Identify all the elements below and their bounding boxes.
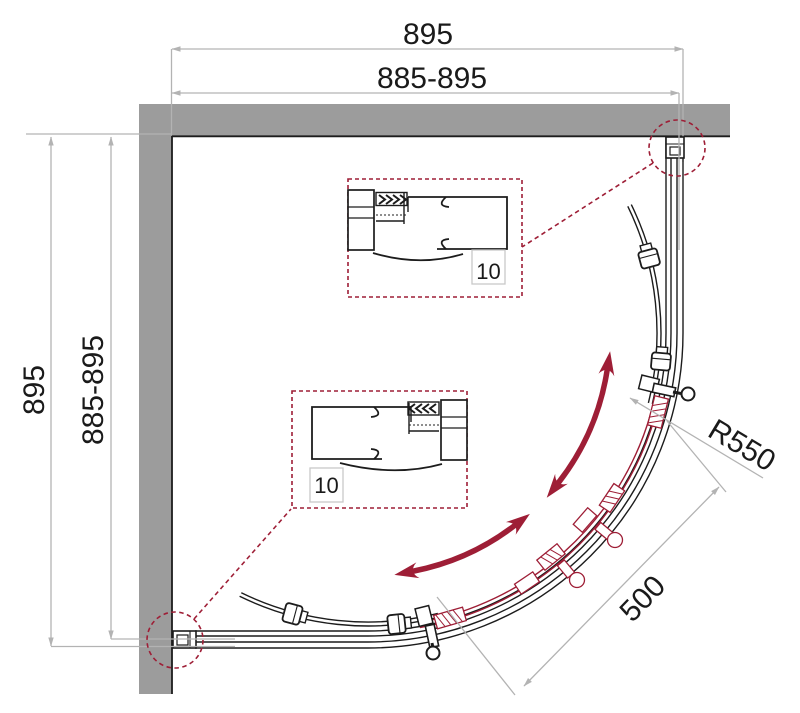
door-overlap-profile [515, 572, 540, 594]
door-end-profile [648, 396, 669, 428]
top-wall [139, 104, 730, 136]
dim-top-overall-label: 895 [403, 18, 453, 51]
dim-left-overall-label: 895 [18, 365, 51, 415]
drawing-canvas: 10 10 895 885-895 8 [0, 0, 800, 713]
dim-opening-label: 500 [614, 569, 673, 628]
door-end-profile [434, 607, 467, 629]
glass-clamp [282, 602, 309, 626]
dim-radius-label: R550 [703, 413, 781, 478]
opening-dimension [437, 421, 726, 695]
slide-direction-arrow-upper [559, 371, 607, 482]
leader-line-top [522, 163, 653, 247]
fixed-glass-top [628, 205, 661, 404]
left-wall [139, 104, 172, 694]
glass-clamp [651, 346, 672, 371]
shower-enclosure-plan: 10 10 895 885-895 8 [0, 0, 800, 713]
dim-top-range-label: 885-895 [377, 62, 487, 95]
leader-line-bottom [194, 509, 291, 619]
glass-clamp [387, 613, 412, 634]
dim-left-range-label: 885-895 [77, 335, 110, 445]
wall-profile-top-right [666, 137, 684, 158]
detail-callout-bottom: 10 [292, 391, 467, 508]
door-overlap-profile [599, 484, 624, 513]
door-handle-top [639, 375, 695, 400]
detail-callout-top: 10 [348, 179, 522, 297]
slide-direction-arrow-lower [414, 526, 514, 571]
adjustment-label-bottom: 10 [314, 473, 338, 498]
glass-clamp [636, 242, 660, 269]
adjustment-label-top: 10 [476, 259, 500, 284]
